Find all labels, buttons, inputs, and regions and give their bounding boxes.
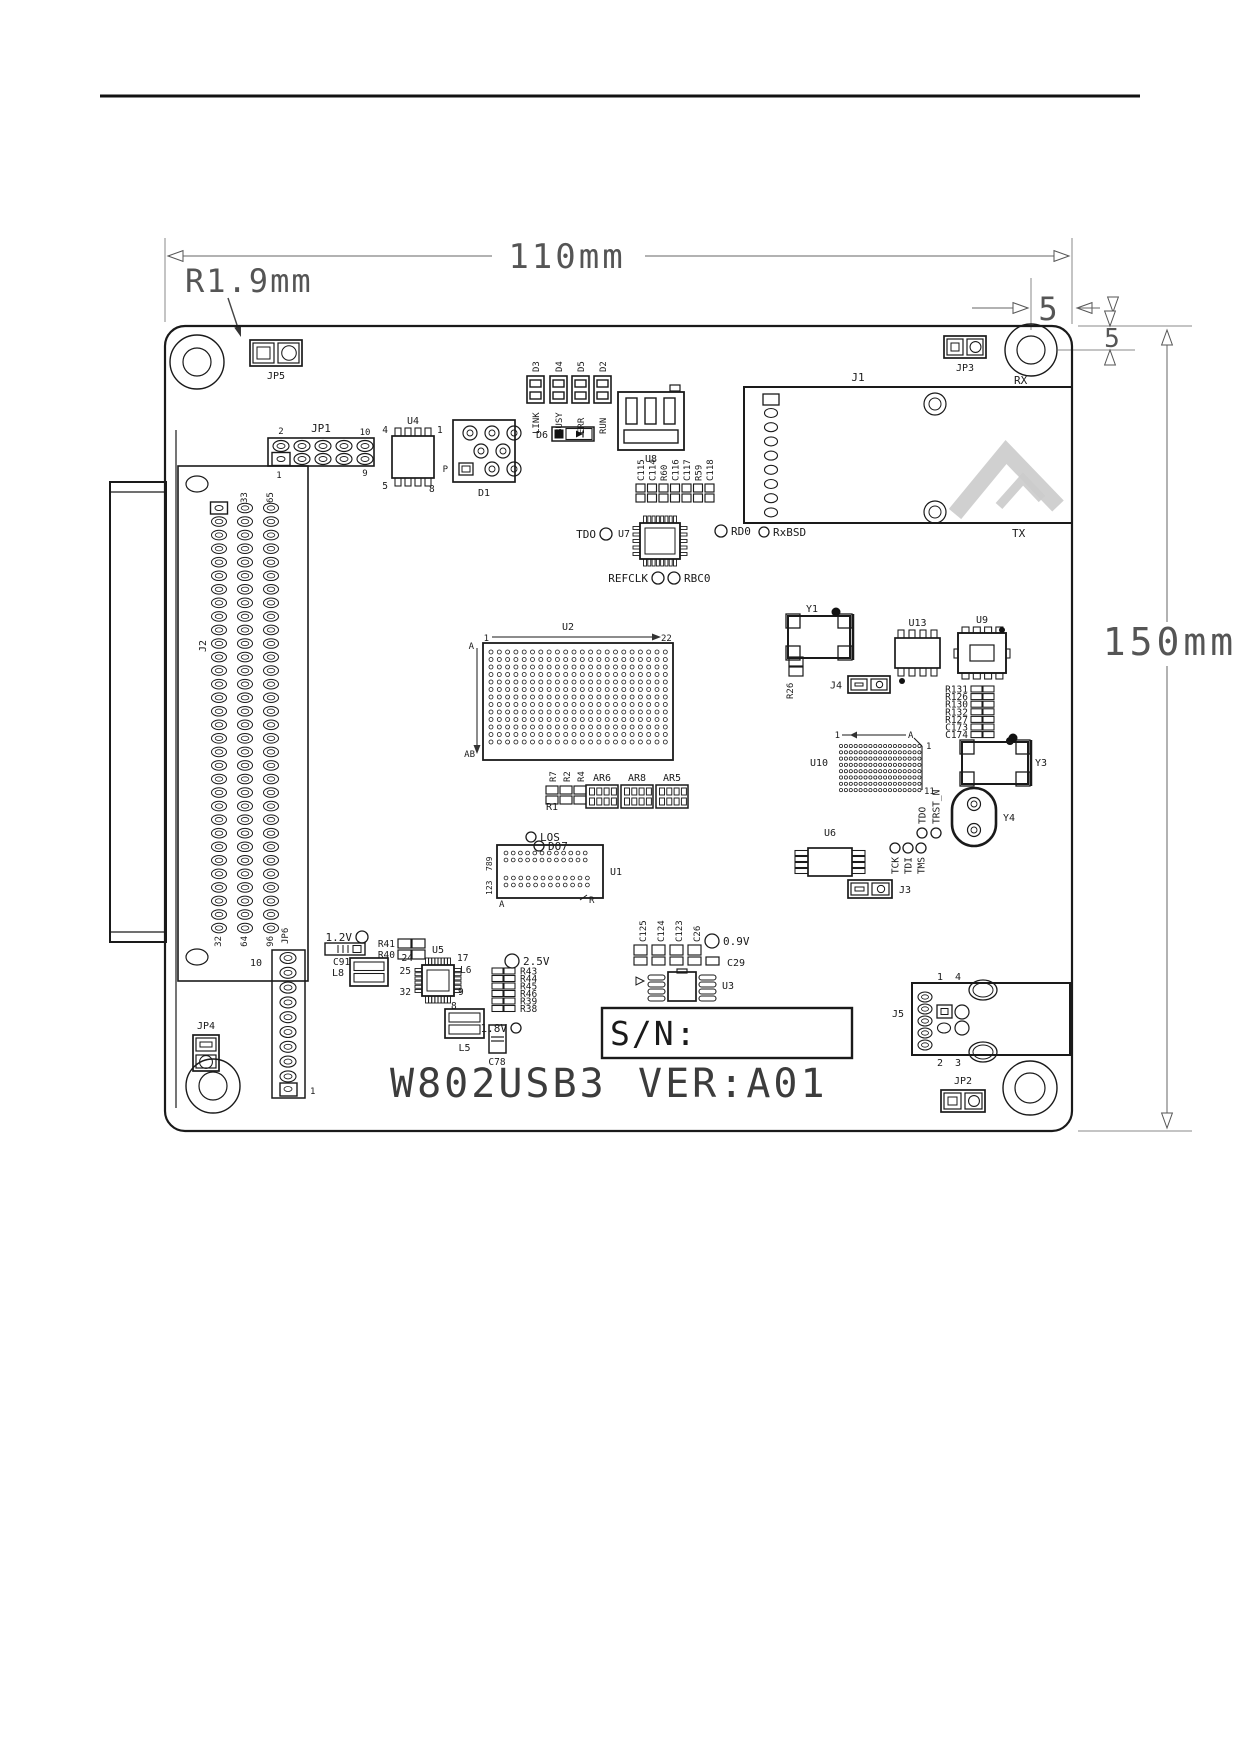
- svg-text:D5: D5: [577, 361, 587, 372]
- ic-u13: U13: [895, 618, 940, 684]
- svg-text:24: 24: [402, 953, 414, 964]
- svg-text:TMS: TMS: [917, 857, 928, 874]
- svg-text:REFCLK: REFCLK: [608, 572, 648, 585]
- svg-text:C124: C124: [657, 920, 667, 942]
- svg-text:AR5: AR5: [663, 773, 681, 784]
- svg-text:64: 64: [240, 936, 250, 947]
- jumper-jp2: JP2: [941, 1076, 985, 1112]
- dim-width-label: 110mm: [508, 237, 625, 277]
- svg-text:JP2: JP2: [954, 1076, 972, 1087]
- svg-text:RD0: RD0: [731, 525, 751, 538]
- svg-text:D6: D6: [536, 430, 548, 441]
- svg-text:96: 96: [266, 936, 276, 947]
- svg-text:C114: C114: [649, 459, 659, 481]
- svg-text:1.2V: 1.2V: [326, 931, 353, 944]
- svg-text:R59: R59: [695, 465, 705, 481]
- svg-text:U6: U6: [824, 828, 836, 839]
- svg-text:D1: D1: [478, 488, 490, 499]
- svg-text:R2: R2: [563, 771, 573, 782]
- dim-radius-arrow: [234, 325, 244, 338]
- svg-text:1: 1: [310, 1087, 315, 1097]
- component-d1: D1P: [443, 420, 521, 499]
- document-page: 110mmR1.9mm55150mmJP5JP3JP2JP4J3J4D3LINK…: [0, 0, 1241, 1754]
- led-d5: D5ERR: [572, 361, 589, 434]
- svg-text:L6: L6: [460, 965, 472, 976]
- svg-text:A: A: [908, 731, 914, 741]
- svg-text:TDO: TDO: [918, 807, 929, 824]
- signal-rxbsd: RxBSD: [759, 526, 806, 539]
- signal-rd0: RD0: [715, 525, 751, 538]
- svg-text:JP4: JP4: [197, 1021, 215, 1032]
- signal-tck: TCK: [890, 843, 902, 874]
- svg-text:1.8V: 1.8V: [481, 1022, 508, 1035]
- svg-text:A: A: [499, 900, 505, 910]
- jumper-j4: J4: [830, 676, 890, 693]
- resistor-array-ar6: AR6: [586, 773, 618, 808]
- oscillator-y4: Y4: [952, 788, 1015, 846]
- svg-text:RUN: RUN: [599, 418, 609, 434]
- ic-u5: U52417253298L6: [400, 945, 472, 1012]
- serial-number-box: S/N:: [602, 1008, 852, 1058]
- cap-c29-label: C29: [727, 958, 745, 969]
- svg-text:J4: J4: [830, 681, 842, 692]
- header-jp6: JP6101: [250, 928, 315, 1098]
- svg-text:R: R: [589, 896, 595, 906]
- svg-text:5: 5: [382, 481, 388, 492]
- svg-text:A: A: [469, 642, 475, 652]
- resistor-stack-r131: R131R126R130R132R127C173C174: [945, 685, 1014, 746]
- svg-text:J3: J3: [899, 885, 911, 896]
- resistor-r41: R41: [378, 939, 425, 950]
- svg-text:10: 10: [360, 428, 371, 438]
- led-d3: D3LINK: [527, 361, 544, 434]
- ic-u6: U6: [795, 828, 865, 876]
- svg-text:1: 1: [937, 972, 943, 983]
- svg-text:L5: L5: [458, 1043, 470, 1054]
- resistor-array-ar5: AR5: [656, 773, 688, 808]
- mount-hole-top-left: [170, 335, 224, 389]
- ic-u3: U3: [636, 969, 734, 1001]
- svg-text:1: 1: [835, 731, 840, 741]
- jumper-jp3: JP3: [944, 336, 986, 374]
- svg-text:U9: U9: [976, 615, 988, 626]
- svg-text:C125: C125: [639, 920, 649, 942]
- svg-text:0.9V: 0.9V: [723, 935, 750, 948]
- svg-text:5: 5: [1038, 290, 1057, 328]
- svg-text:Y1: Y1: [806, 604, 818, 615]
- svg-text:AR6: AR6: [593, 773, 611, 784]
- mount-hole-bottom-left: [186, 1059, 240, 1113]
- svg-text:AB: AB: [464, 750, 475, 760]
- svg-text:R4: R4: [577, 771, 587, 782]
- resistor-array-ar8: AR8: [621, 773, 653, 808]
- svg-text:1: 1: [926, 742, 931, 752]
- svg-text:JP3: JP3: [956, 363, 974, 374]
- svg-text:R60: R60: [660, 465, 670, 481]
- pcb-layout-diagram: 110mmR1.9mm55150mmJP5JP3JP2JP4J3J4D3LINK…: [0, 0, 1241, 1754]
- ic-u4: U44158: [382, 416, 443, 495]
- led-d2: D2RUN: [594, 361, 611, 434]
- connector-j5: 1423J5: [892, 972, 1070, 1069]
- crystal-y3: Y3: [960, 734, 1047, 787]
- svg-text:U10: U10: [810, 758, 828, 769]
- svg-text:110mm: 110mm: [508, 237, 625, 277]
- rail-0v9: 0.9V: [705, 934, 750, 948]
- dim-radius-label: R1.9mm: [185, 262, 313, 300]
- svg-text:2: 2: [278, 427, 283, 437]
- svg-text:TCK: TCK: [891, 857, 902, 874]
- svg-text:RBC0: RBC0: [684, 572, 711, 585]
- svg-text:22: 22: [661, 634, 672, 644]
- cap-c91: C91: [325, 943, 365, 968]
- svg-text:U4: U4: [407, 416, 419, 427]
- dim-height-label: 150mm: [1103, 620, 1237, 664]
- svg-text:JP5: JP5: [267, 371, 285, 382]
- svg-text:TDI: TDI: [904, 857, 915, 874]
- svg-text:U2: U2: [562, 622, 574, 633]
- cap-row-c115: C115C114R60C116C117R59C118: [636, 459, 716, 502]
- svg-text:U7: U7: [618, 529, 630, 540]
- svg-text:J5: J5: [892, 1009, 904, 1020]
- svg-text:U5: U5: [432, 945, 444, 956]
- svg-text:AR8: AR8: [628, 773, 646, 784]
- svg-text:RX: RX: [1014, 374, 1028, 387]
- svg-text:1: 1: [484, 634, 489, 644]
- svg-text:JP1: JP1: [311, 422, 331, 435]
- svg-text:33: 33: [240, 492, 250, 503]
- bga-u2: U2122AAB: [464, 622, 673, 760]
- svg-text:32: 32: [214, 936, 224, 947]
- jumper-j3: J3: [848, 880, 911, 898]
- svg-text:RxBSD: RxBSD: [773, 526, 806, 539]
- signal-rbc0: RBC0: [668, 572, 711, 585]
- signal-tdo: TDO: [576, 528, 612, 541]
- svg-text:4: 4: [955, 972, 961, 983]
- svg-text:25: 25: [400, 966, 411, 977]
- svg-text:9: 9: [362, 469, 367, 479]
- svg-text:C116: C116: [672, 459, 682, 481]
- svg-text:L8: L8: [332, 968, 344, 979]
- svg-text:R40: R40: [378, 950, 395, 961]
- svg-text:65: 65: [266, 492, 276, 503]
- signal-tdi: TDI: [903, 843, 915, 874]
- svg-text:R7: R7: [549, 771, 559, 782]
- svg-text:C118: C118: [706, 459, 716, 481]
- rail-1v8: 1.8V: [481, 1022, 522, 1035]
- ic-u7: U7: [618, 516, 687, 566]
- usb-connector-u8: U8: [618, 385, 684, 465]
- svg-text:J1: J1: [851, 371, 864, 384]
- svg-text:P: P: [443, 465, 449, 475]
- svg-text:17: 17: [457, 953, 468, 964]
- signal-tms: TMS: [916, 843, 928, 874]
- crystal-y1: Y1: [786, 604, 853, 660]
- ic-u1: 789123ARU1: [485, 845, 622, 910]
- cap-row-c125: C125C124C123C26: [634, 920, 703, 965]
- header-jp1: JP121019: [268, 422, 374, 481]
- svg-text:DO7: DO7: [548, 840, 568, 853]
- dim-5h-arrow: [1013, 303, 1028, 314]
- svg-text:R1: R1: [546, 802, 558, 813]
- mount-hole-top-right: [1005, 324, 1057, 376]
- dim-110-arrow-left: [168, 251, 183, 262]
- svg-text:R41: R41: [378, 939, 395, 950]
- svg-text:8: 8: [451, 1001, 457, 1012]
- inductor-l5: L5: [445, 1009, 484, 1054]
- svg-text:Y4: Y4: [1003, 813, 1015, 824]
- svg-text:J2: J2: [198, 640, 209, 652]
- svg-text:10: 10: [250, 958, 262, 969]
- svg-text:JP6: JP6: [281, 928, 291, 944]
- svg-text:D4: D4: [555, 361, 565, 372]
- svg-text:C91: C91: [333, 957, 350, 968]
- connector-j1: J1RXTX: [744, 371, 1072, 540]
- board-title: W802USB3: [390, 1061, 607, 1107]
- svg-text:1: 1: [437, 425, 443, 436]
- svg-text:123: 123: [485, 880, 494, 895]
- svg-text:C29: C29: [727, 958, 745, 969]
- dim-150-arrow-bottom: [1162, 1113, 1173, 1128]
- connector-j2: 3365326496J2: [110, 430, 308, 1108]
- svg-text:TX: TX: [1012, 527, 1026, 540]
- svg-text:D3: D3: [532, 361, 542, 372]
- svg-text:32: 32: [400, 987, 411, 998]
- svg-text:C117: C117: [683, 459, 693, 481]
- signal-refclk: REFCLK: [608, 572, 664, 585]
- led-d4: D4BUSY: [550, 361, 567, 434]
- svg-text:5: 5: [1104, 324, 1120, 354]
- resistor-r26: R26: [786, 657, 803, 699]
- svg-text:C115: C115: [637, 459, 647, 481]
- svg-text:TRST_N: TRST_N: [932, 789, 943, 824]
- svg-text:4: 4: [382, 425, 388, 436]
- svg-text:R1.9mm: R1.9mm: [185, 262, 313, 300]
- resistor-group-r7: R7R2R4R1: [546, 771, 587, 813]
- svg-text:U1: U1: [610, 867, 622, 878]
- svg-text:U3: U3: [722, 981, 734, 992]
- svg-text:C26: C26: [693, 926, 703, 942]
- dim-150-arrow-top: [1162, 330, 1173, 345]
- svg-text:ERR: ERR: [577, 417, 587, 434]
- bga-u10: 1A111U10: [810, 731, 935, 797]
- svg-text:8: 8: [429, 484, 435, 495]
- ic-u9: U9: [954, 615, 1010, 679]
- resistor-stack-r43: R43R44R45R46R39R38: [492, 967, 537, 1016]
- watermark-logo: [955, 452, 1058, 514]
- svg-text:TDO: TDO: [576, 528, 596, 541]
- signal-trst-n: TRST_N: [931, 789, 943, 838]
- svg-text:C123: C123: [675, 920, 685, 942]
- board-version: VER:A01: [638, 1061, 828, 1107]
- svg-text:1: 1: [276, 471, 281, 481]
- dim-5v-label: 5: [1104, 324, 1120, 354]
- svg-text:2: 2: [937, 1058, 943, 1069]
- svg-text:R38: R38: [520, 1004, 537, 1015]
- jumper-jp5: JP5: [250, 340, 302, 382]
- svg-text:9: 9: [458, 987, 464, 998]
- cap-c29-body: [706, 957, 719, 965]
- mount-hole-bottom-right: [1003, 1061, 1057, 1115]
- signal-tdo-jtag: TDO: [917, 807, 929, 838]
- svg-text:VER:A01: VER:A01: [638, 1061, 828, 1107]
- svg-text:W802USB3: W802USB3: [390, 1061, 607, 1107]
- dim-5h-label: 5: [1038, 290, 1057, 328]
- rail-1v2: 1.2V: [326, 931, 369, 944]
- dim-110-arrow-right: [1054, 251, 1069, 262]
- svg-text:150mm: 150mm: [1103, 620, 1237, 664]
- svg-text:S/N:: S/N:: [610, 1014, 697, 1053]
- dim-5h-tri: [1108, 297, 1119, 312]
- svg-text:3: 3: [955, 1058, 961, 1069]
- svg-text:U13: U13: [908, 618, 926, 629]
- svg-text:D2: D2: [599, 361, 609, 372]
- svg-text:789: 789: [485, 856, 494, 871]
- svg-text:R26: R26: [786, 683, 796, 699]
- svg-text:Y3: Y3: [1035, 758, 1047, 769]
